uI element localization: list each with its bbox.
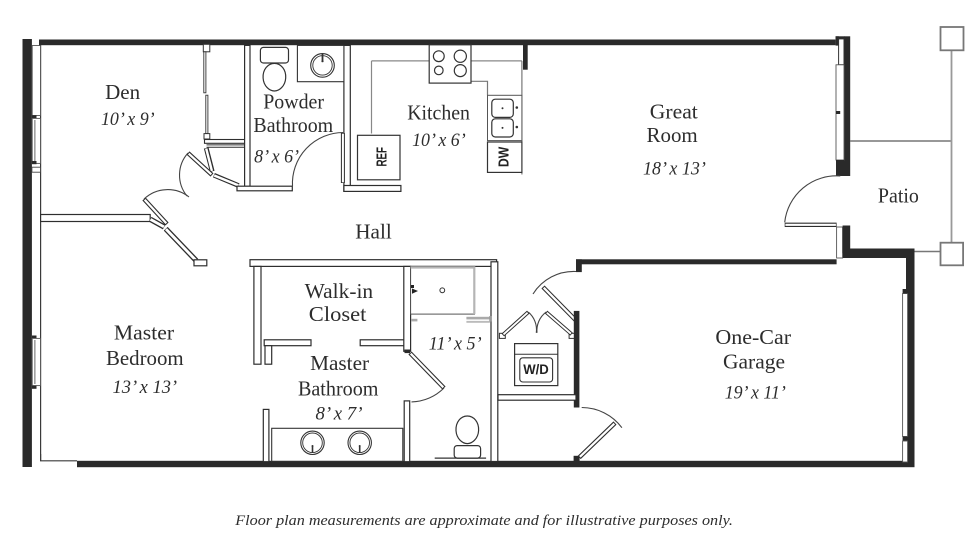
svg-text:Powder: Powder (263, 90, 324, 114)
svg-text:DW: DW (497, 146, 513, 167)
svg-text:Bathroom: Bathroom (253, 113, 333, 137)
svg-text:8’ x 6’: 8’ x 6’ (254, 147, 299, 168)
svg-text:13’ x 13’: 13’ x 13’ (113, 377, 178, 398)
svg-text:Great: Great (650, 99, 698, 123)
svg-text:10’ x 6’: 10’ x 6’ (412, 130, 466, 151)
svg-text:Kitchen: Kitchen (407, 101, 470, 125)
svg-text:REF: REF (375, 147, 391, 167)
svg-text:Hall: Hall (355, 219, 392, 243)
svg-text:Den: Den (105, 80, 140, 104)
svg-text:Room: Room (647, 123, 698, 147)
svg-text:Master: Master (114, 320, 174, 344)
svg-text:Patio: Patio (878, 183, 919, 207)
svg-text:Master: Master (310, 351, 369, 375)
svg-text:One-Car: One-Car (715, 325, 791, 349)
svg-text:Closet: Closet (309, 302, 367, 326)
svg-text:Floor plan measurements are ap: Floor plan measurements are approximate … (234, 513, 733, 529)
svg-text:Bedroom: Bedroom (106, 346, 184, 370)
svg-text:Bathroom: Bathroom (298, 377, 379, 401)
svg-text:19’ x 11’: 19’ x 11’ (725, 382, 786, 403)
svg-text:W/D: W/D (523, 362, 549, 377)
svg-text:18’ x 13’: 18’ x 13’ (643, 158, 706, 179)
svg-text:10’ x 9’: 10’ x 9’ (101, 109, 155, 130)
svg-text:Walk-in: Walk-in (305, 279, 374, 303)
svg-text:11’ x 5’: 11’ x 5’ (429, 334, 482, 355)
svg-text:Garage: Garage (723, 350, 785, 374)
svg-text:8’ x 7’: 8’ x 7’ (316, 404, 363, 425)
